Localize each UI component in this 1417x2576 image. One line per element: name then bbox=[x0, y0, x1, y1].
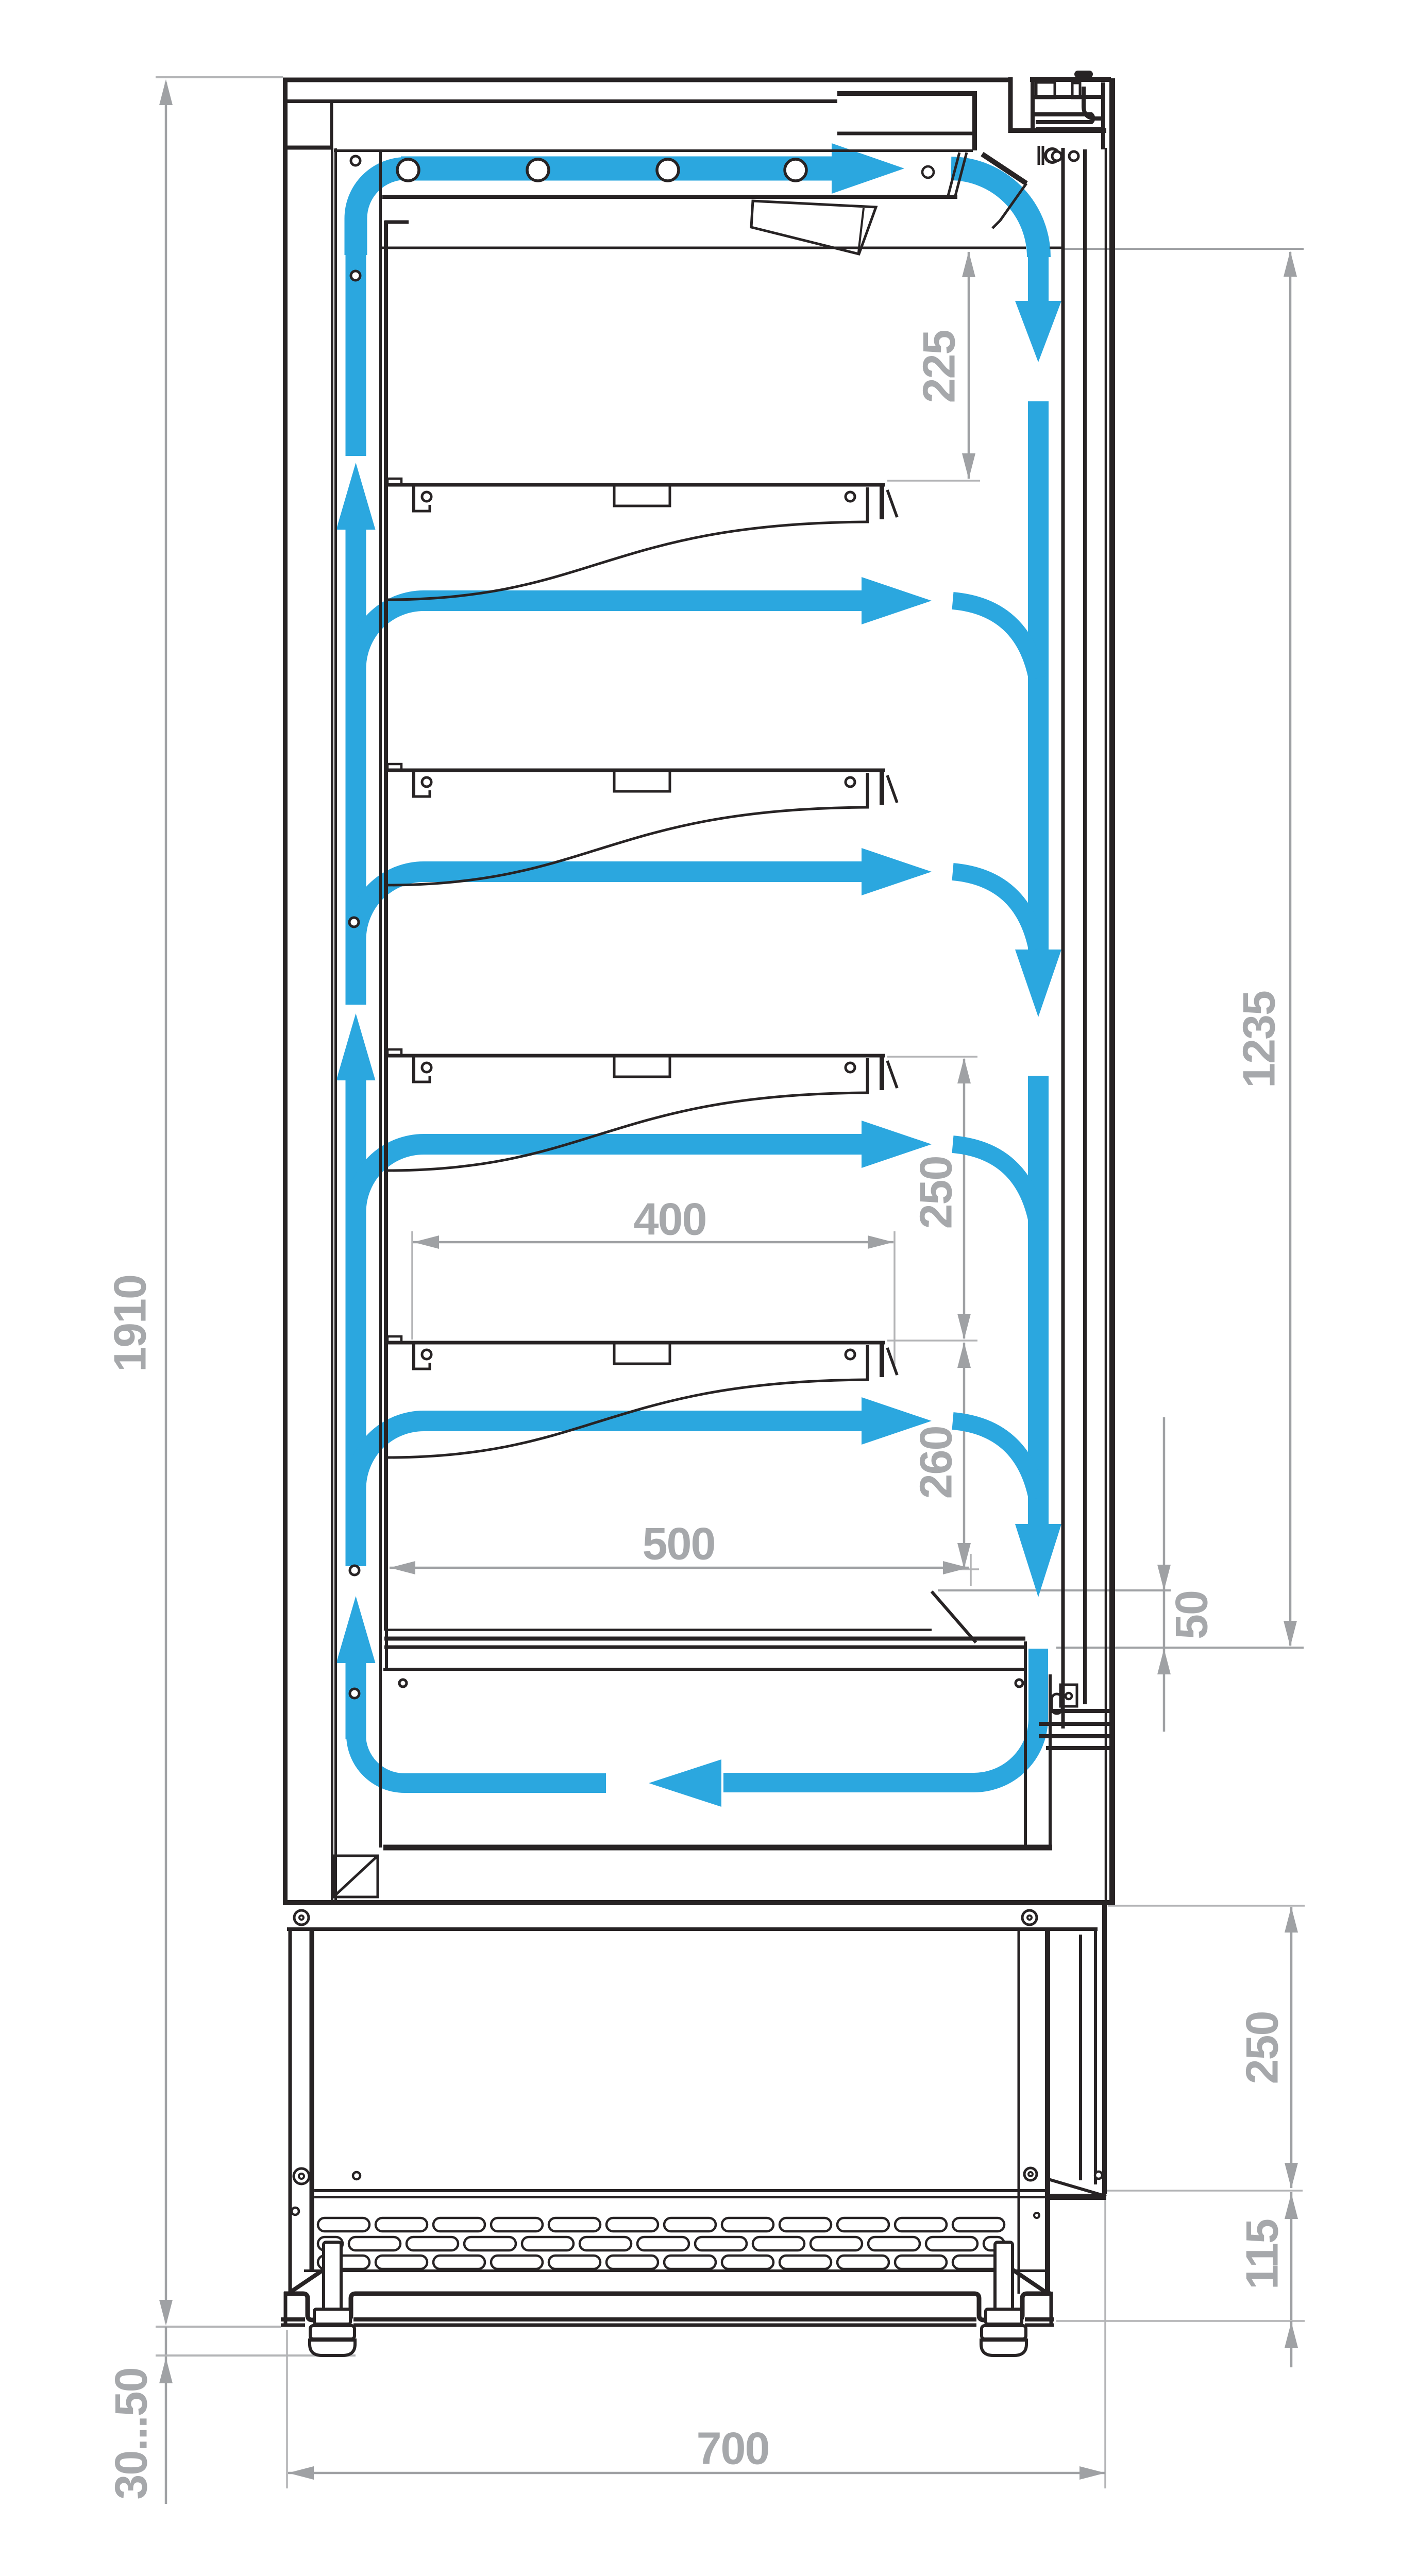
svg-text:250: 250 bbox=[910, 1157, 961, 1229]
svg-text:50: 50 bbox=[1166, 1591, 1217, 1639]
svg-text:1910: 1910 bbox=[105, 1275, 156, 1372]
svg-text:225: 225 bbox=[914, 331, 965, 403]
svg-text:115: 115 bbox=[1237, 2219, 1288, 2290]
svg-text:1235: 1235 bbox=[1234, 991, 1285, 1088]
svg-text:500: 500 bbox=[643, 1518, 715, 1569]
svg-text:400: 400 bbox=[634, 1194, 706, 1245]
svg-text:260: 260 bbox=[910, 1427, 961, 1499]
svg-text:700: 700 bbox=[697, 2423, 769, 2474]
svg-text:30...50: 30...50 bbox=[106, 2368, 157, 2499]
svg-text:250: 250 bbox=[1237, 2012, 1288, 2084]
